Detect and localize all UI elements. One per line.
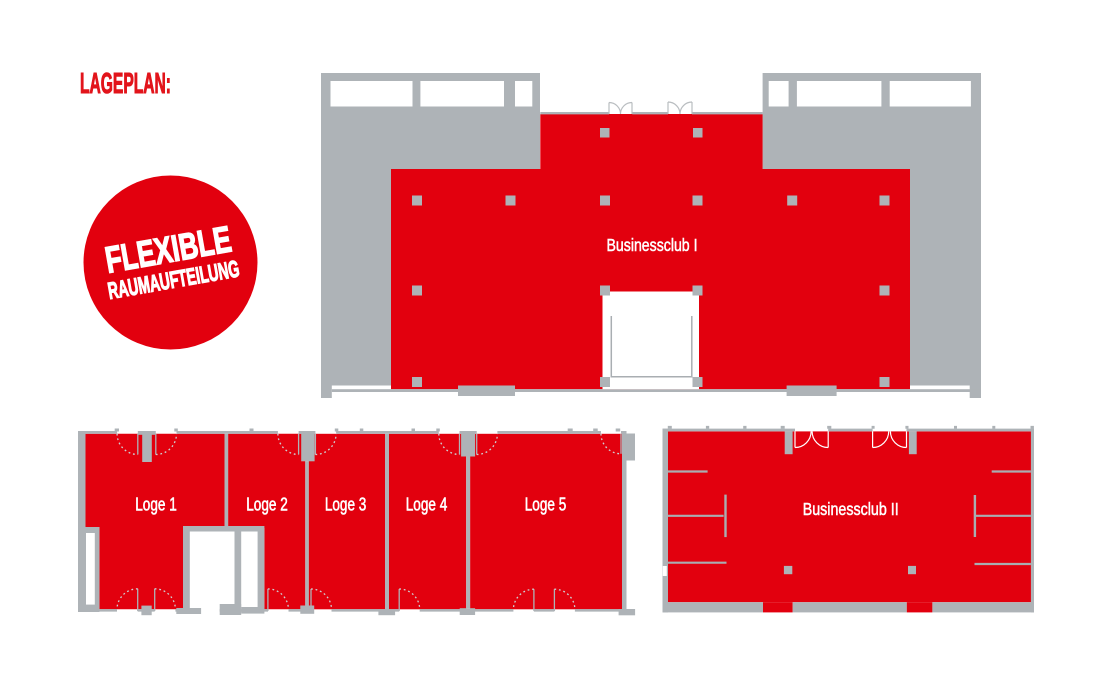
svg-text:LAGEPLAN:: LAGEPLAN: [80, 68, 171, 100]
svg-text:Businessclub I: Businessclub I [607, 235, 698, 255]
svg-text:Loge 3: Loge 3 [325, 493, 367, 514]
svg-text:Loge 4: Loge 4 [406, 493, 448, 514]
svg-text:Businessclub II: Businessclub II [803, 499, 899, 519]
svg-text:Loge 2: Loge 2 [246, 493, 288, 514]
svg-text:Loge 5: Loge 5 [525, 493, 567, 514]
svg-text:Loge 1: Loge 1 [135, 493, 177, 514]
